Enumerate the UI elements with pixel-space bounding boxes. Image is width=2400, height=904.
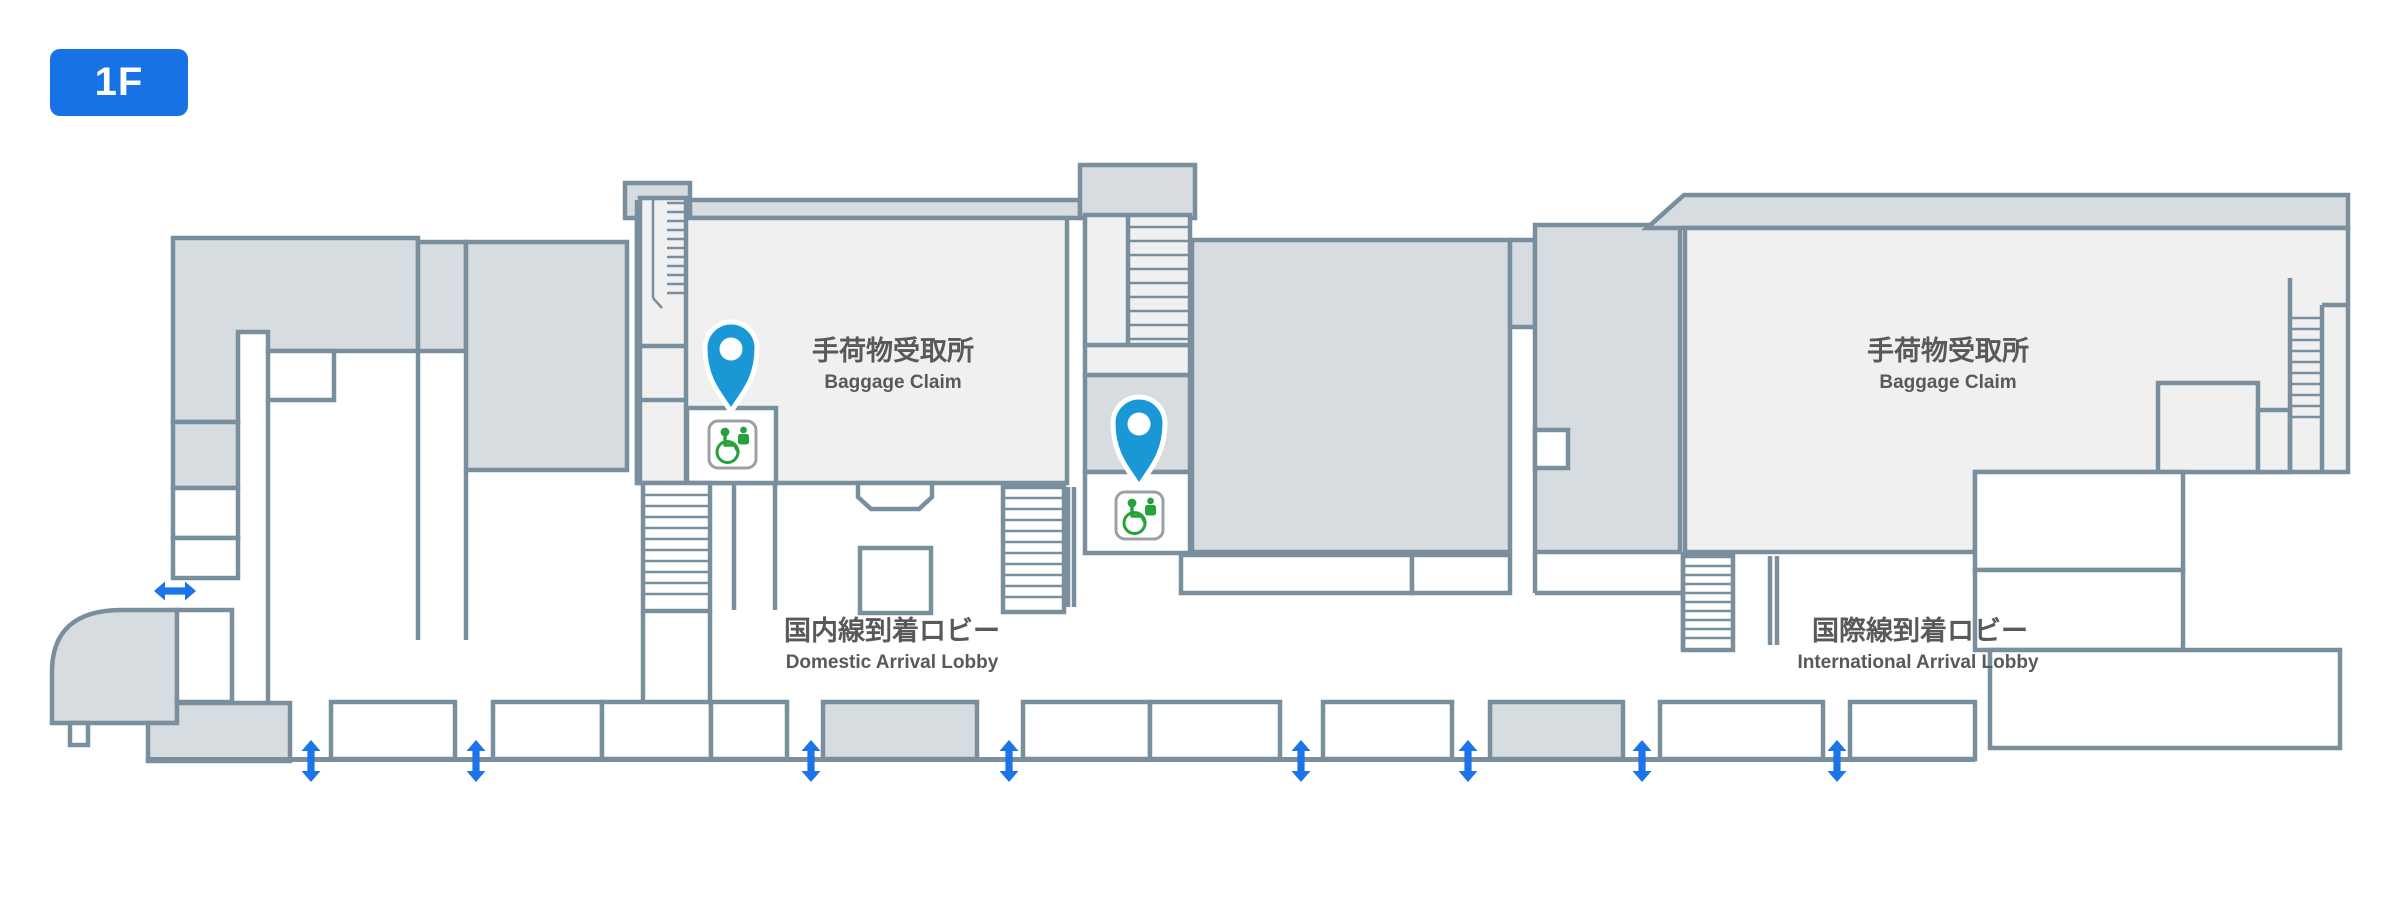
terminal-floor-plan: 手荷物受取所 Baggage Claim 手荷物受取所 Baggage Clai… (0, 0, 2400, 904)
staircase-2 (1003, 487, 1064, 612)
counter-box-gray (823, 702, 977, 759)
right-wing-room (1975, 472, 2183, 570)
counter-box (1323, 702, 1452, 759)
counter-room (1181, 555, 1412, 593)
baggage-claim-domestic-label-en: Baggage Claim (824, 372, 961, 393)
center-service-block-right (1535, 225, 1680, 552)
interior-room-international (2158, 383, 2258, 472)
international-arrival-lobby-label-jp: 国際線到着ロビー (1812, 615, 2028, 647)
small-room (173, 488, 238, 538)
accessible-toilet-icon (709, 421, 756, 468)
floor-badge-label: 1F (95, 60, 144, 105)
left-service-cell (173, 422, 238, 488)
baggage-claim-international-label-en: Baggage Claim (1879, 372, 2016, 393)
counter-box (493, 702, 602, 759)
small-room (268, 351, 334, 400)
small-room (1535, 430, 1568, 468)
walkway-arrow-icon (154, 582, 196, 601)
domestic-arrival-lobby-label-jp: 国内線到着ロビー (784, 615, 1000, 647)
top-band-international (1647, 195, 2348, 228)
center-service-bridge (1510, 240, 1535, 327)
accessible-toilet-icon (1116, 492, 1163, 539)
small-room (70, 723, 88, 745)
small-room (177, 610, 232, 702)
counter-box-gray (1490, 702, 1623, 759)
hall-door-recess (858, 483, 932, 509)
counter-box (1150, 702, 1280, 759)
staircase-1 (643, 483, 710, 611)
interior-cell-international (2258, 410, 2290, 472)
counter-box (602, 702, 711, 759)
top-band-domestic (685, 200, 1080, 218)
domestic-arrival-lobby-label-en: Domestic Arrival Lobby (786, 652, 999, 673)
escalator-shaft-1 (640, 198, 686, 483)
counter-room (1412, 555, 1510, 593)
baggage-claim-international-label-jp: 手荷物受取所 (1867, 335, 2029, 367)
floor-selector-badge[interactable]: 1F (50, 49, 188, 116)
floor-map-page: 手荷物受取所 Baggage Claim 手荷物受取所 Baggage Clai… (0, 0, 2400, 904)
left-service-room (418, 242, 466, 351)
center-column-light-cell (1085, 345, 1190, 375)
counter-box (331, 702, 455, 759)
counter-box (1850, 702, 1975, 759)
small-room (173, 538, 238, 578)
counter-box (711, 702, 787, 759)
right-wing-room (1990, 650, 2340, 748)
counter-box (1660, 702, 1823, 759)
baggage-claim-domestic-label-jp: 手荷物受取所 (812, 335, 974, 367)
rounded-corner-room (52, 610, 177, 723)
counter-box (1023, 702, 1150, 759)
small-room (860, 548, 931, 613)
international-arrival-lobby-label-en: International Arrival Lobby (1797, 652, 2038, 673)
center-service-block-left (1192, 240, 1510, 552)
left-service-room (466, 242, 627, 470)
escalator-cap-2 (1080, 165, 1195, 218)
